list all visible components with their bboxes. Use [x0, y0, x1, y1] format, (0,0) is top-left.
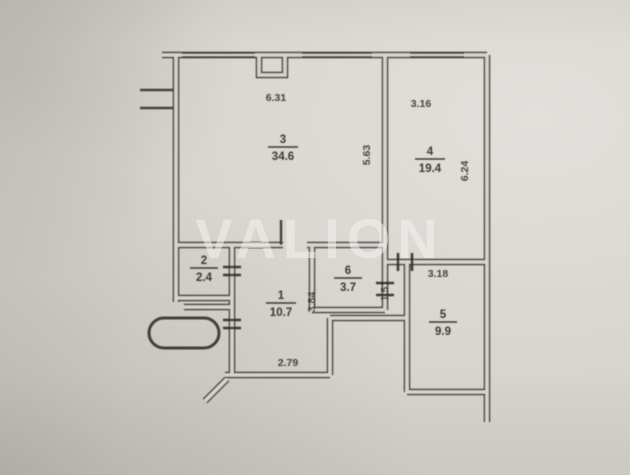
dim-room1-width: 2.79	[278, 357, 299, 369]
room-number: 5	[440, 309, 447, 321]
room-number: 3	[280, 134, 286, 146]
room-area: 10.7	[270, 307, 292, 319]
room-3-label: 3 34.6	[268, 134, 298, 163]
dim-mid-wall-height: 5.63	[361, 145, 373, 166]
room-area: 34.6	[272, 151, 294, 163]
dim-niche-height: 1.51	[379, 281, 391, 302]
oval-column	[149, 318, 219, 348]
dim-room4-height: 6.24	[459, 161, 471, 182]
floor-plan-scan: 3 34.6 4 19.4 2 2.4 1 10.7 6	[0, 0, 630, 475]
room-5-label: 5 9.9	[429, 309, 457, 338]
landing-wall-stubs	[140, 90, 173, 108]
valion-watermark: VALION	[195, 207, 444, 270]
floor-plan-drawing: 3 34.6 4 19.4 2 2.4 1 10.7 6	[0, 0, 630, 475]
room-number: 1	[278, 290, 285, 302]
room-4-label: 4 19.4	[415, 146, 445, 175]
room-area: 2.4	[196, 272, 213, 284]
room-area: 3.7	[340, 282, 356, 294]
room-area: 19.4	[419, 163, 442, 175]
dim-room4-width: 3.16	[411, 98, 432, 110]
room-1-label: 1 10.7	[266, 290, 296, 319]
dim-room3-width: 6.31	[266, 92, 287, 104]
room-area: 9.9	[435, 326, 451, 338]
room-number: 4	[427, 146, 434, 158]
dim-room1-height: 3.84	[306, 292, 318, 313]
